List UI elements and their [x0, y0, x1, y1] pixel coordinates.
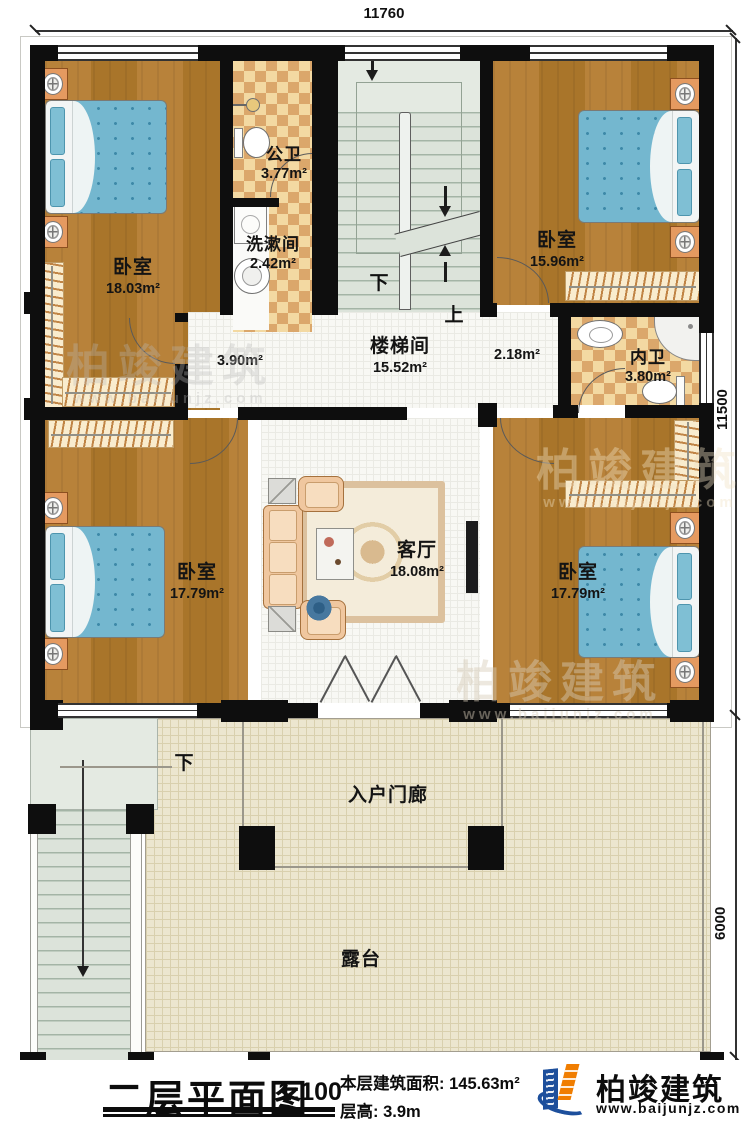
lamp-icon: [675, 661, 695, 683]
wall: [238, 407, 407, 420]
stair-rail: [399, 112, 411, 310]
room-name: 露台: [341, 948, 381, 972]
wall: [45, 407, 188, 420]
sink-basin: [589, 327, 613, 343]
room-area: 18.03m²: [106, 280, 160, 298]
bed: [45, 526, 165, 638]
room-area: 3.77m²: [261, 165, 307, 183]
hall-west-area-label: 3.90m²: [217, 352, 263, 370]
pillow: [677, 117, 692, 165]
stair-arrow-down: [439, 206, 451, 217]
room-label-stair-hall: 楼梯间 15.52m²: [370, 335, 430, 377]
wall: [312, 60, 338, 315]
pillow: [50, 107, 65, 155]
lamp-icon: [43, 497, 63, 519]
room-name: 客厅: [390, 539, 444, 563]
floor-height-label: 层高:: [340, 1103, 379, 1121]
wall: [625, 405, 714, 418]
bed-headboard: [672, 111, 699, 222]
porch-line-left: [242, 718, 244, 828]
room-label-public-bathroom: 公卫 3.77m²: [261, 144, 307, 183]
stair-arrow-up: [439, 245, 451, 256]
wall: [553, 405, 578, 418]
hall-east-area-label: 2.18m²: [494, 346, 540, 364]
wall: [550, 303, 714, 317]
dimension-line-right: [735, 38, 737, 1062]
washer-door-icon: [241, 215, 260, 234]
window: [58, 45, 198, 61]
tv: [466, 521, 478, 593]
toilet-tank: [676, 376, 685, 406]
bed-headboard: [46, 527, 73, 637]
stair-up-label: 上: [444, 300, 463, 327]
wall-pilaster: [24, 398, 32, 420]
room-name: 卧室: [530, 229, 584, 253]
porch-down-leader-line: [60, 766, 172, 768]
room-label-bedroom-bottom-right: 卧室 17.79m²: [551, 561, 605, 603]
room-label-living-room: 客厅 18.08m²: [390, 539, 444, 581]
wall-column: [670, 700, 714, 722]
title-underline: [103, 1107, 335, 1112]
wall: [480, 303, 497, 317]
brand-logo-icon: [540, 1063, 590, 1115]
plan-scale: 1:100: [278, 1078, 342, 1107]
floor-plan-canvas: 11760 11500 6000 卧室 18.03m² 公卫 3.77m² 洗漱…: [0, 0, 750, 1128]
bed-headboard: [672, 547, 699, 657]
porch-down-label: 下: [174, 748, 193, 775]
sofa-cushion: [269, 574, 297, 605]
logo-swoosh: [535, 1086, 591, 1120]
sofa-cushion: [305, 482, 339, 508]
side-table: [268, 606, 296, 632]
wall: [30, 45, 45, 718]
floor-area-label: 本层建筑面积:: [340, 1075, 445, 1093]
window: [530, 45, 667, 61]
floor-height-text: 层高: 3.9m: [340, 1098, 421, 1122]
wall: [480, 60, 493, 303]
wall: [220, 60, 233, 315]
stair-column: [126, 804, 154, 834]
drain-icon: [688, 324, 693, 329]
room-name: 公卫: [261, 144, 307, 165]
room-area: 17.79m²: [170, 585, 224, 603]
bed-mattress: [579, 111, 672, 222]
stair-down-arrow: [77, 966, 89, 977]
room-name: 内卫: [625, 347, 671, 368]
table-decor: [324, 537, 334, 547]
room-area: 2.42m²: [246, 255, 300, 273]
title-underline: [103, 1114, 335, 1117]
lamp-icon: [43, 643, 63, 665]
wall-column: [478, 403, 497, 427]
bed-mattress: [73, 527, 164, 637]
room-label-washroom: 洗漱间 2.42m²: [246, 234, 300, 273]
brand-url: www.baijunjz.com: [596, 1100, 741, 1116]
lamp-icon: [43, 73, 63, 95]
dimension-right-main: 11500: [714, 340, 731, 430]
pillow: [50, 584, 65, 631]
porch-column: [239, 826, 275, 870]
room-area: 15.96m²: [530, 253, 584, 271]
room-name: 洗漱间: [246, 234, 300, 255]
wardrobe: [48, 420, 174, 448]
wall: [558, 317, 571, 409]
bed-sheet: [73, 527, 95, 637]
wardrobe: [62, 377, 174, 407]
floor-area-value: 145.63m²: [449, 1075, 520, 1093]
room-area: 2.18m²: [494, 346, 540, 364]
bed: [578, 110, 700, 223]
wardrobe: [565, 480, 700, 508]
ensuite-sink: [577, 320, 623, 348]
plant: [303, 590, 335, 626]
exterior-stair-landing: [30, 718, 158, 810]
wall-column: [449, 700, 497, 722]
floor-height-value: 3.9m: [383, 1103, 421, 1121]
nightstand: [670, 226, 700, 258]
wall-pilaster: [24, 292, 32, 314]
dimension-right-terrace: 6000: [712, 880, 729, 940]
room-name: 入户门廊: [348, 784, 428, 808]
pillow: [50, 533, 65, 580]
bed-sheet: [650, 111, 672, 222]
room-label-porch: 入户门廊: [348, 784, 428, 808]
pillow: [677, 604, 692, 651]
room-area: 18.08m²: [390, 563, 444, 581]
pillow: [677, 169, 692, 217]
room-area: 17.79m²: [551, 585, 605, 603]
room-name: 卧室: [170, 561, 224, 585]
wall: [175, 364, 188, 410]
floor-area-text: 本层建筑面积: 145.63m²: [340, 1070, 520, 1094]
terrace-floor: [145, 718, 711, 1052]
exterior-stair-rail-left: [30, 810, 38, 1085]
room-label-bedroom-bottom-left: 卧室 17.79m²: [170, 561, 224, 603]
lamp-icon: [43, 221, 63, 243]
pillow: [677, 553, 692, 600]
window: [699, 333, 714, 403]
exterior-stair-steps: [38, 810, 130, 1085]
double-door-opening: [318, 703, 420, 718]
room-area: 3.90m²: [217, 352, 263, 370]
lamp-icon: [675, 231, 695, 253]
room-label-terrace: 露台: [341, 948, 381, 972]
wardrobe: [565, 271, 700, 301]
sofa: [263, 505, 303, 609]
nightstand: [670, 78, 700, 110]
window: [345, 45, 460, 61]
dimension-top: 11760: [349, 5, 419, 22]
bed-sheet: [650, 547, 672, 657]
stair-arrow-stem: [444, 262, 447, 282]
bed-mattress: [73, 101, 166, 213]
nightstand: [670, 656, 700, 688]
coffee-table: [316, 528, 354, 580]
room-label-ensuite: 内卫 3.80m²: [625, 347, 671, 386]
sofa-cushion: [269, 542, 297, 573]
porch-line-right: [501, 718, 503, 828]
armchair: [298, 476, 344, 512]
window: [510, 703, 667, 718]
stair-down-label: 下: [369, 268, 388, 295]
wardrobe: [674, 420, 700, 482]
table-decor: [335, 559, 341, 565]
room-name: 卧室: [106, 256, 160, 280]
wall: [175, 313, 188, 322]
stair-arrow-down: [366, 70, 378, 81]
wall: [233, 198, 279, 207]
toilet-tank: [234, 128, 243, 158]
title-block: 二层平面图 1:100 本层建筑面积: 145.63m² 层高: 3.9m 柏竣…: [0, 1060, 750, 1128]
pillow: [50, 159, 65, 207]
lamp-icon: [675, 83, 695, 105]
bed: [45, 100, 167, 214]
stair-arrow-stem: [444, 186, 447, 206]
nightstand: [670, 512, 700, 544]
terrace-inner-line: [702, 718, 704, 1052]
dimension-line-top: [35, 30, 733, 32]
room-area: 15.52m²: [370, 359, 430, 377]
lamp-icon: [675, 517, 695, 539]
light-fixture-icon: [246, 98, 260, 112]
sofa-cushion: [269, 510, 297, 541]
stair-column: [28, 804, 56, 834]
room-label-bedroom-top-left: 卧室 18.03m²: [106, 256, 160, 298]
room-label-bedroom-top-right: 卧室 15.96m²: [530, 229, 584, 271]
window: [58, 703, 197, 718]
exterior-stair-rail-right: [130, 810, 142, 1085]
side-table: [268, 478, 296, 504]
room-name: 卧室: [551, 561, 605, 585]
bed-sheet: [73, 101, 95, 213]
room-name: 楼梯间: [370, 335, 430, 359]
stair-direction-line: [82, 760, 84, 968]
room-area: 3.80m²: [625, 368, 671, 386]
porch-column: [468, 826, 504, 870]
wall-column: [221, 700, 288, 722]
bed-headboard: [46, 101, 73, 213]
porch-line-bottom: [275, 866, 469, 868]
